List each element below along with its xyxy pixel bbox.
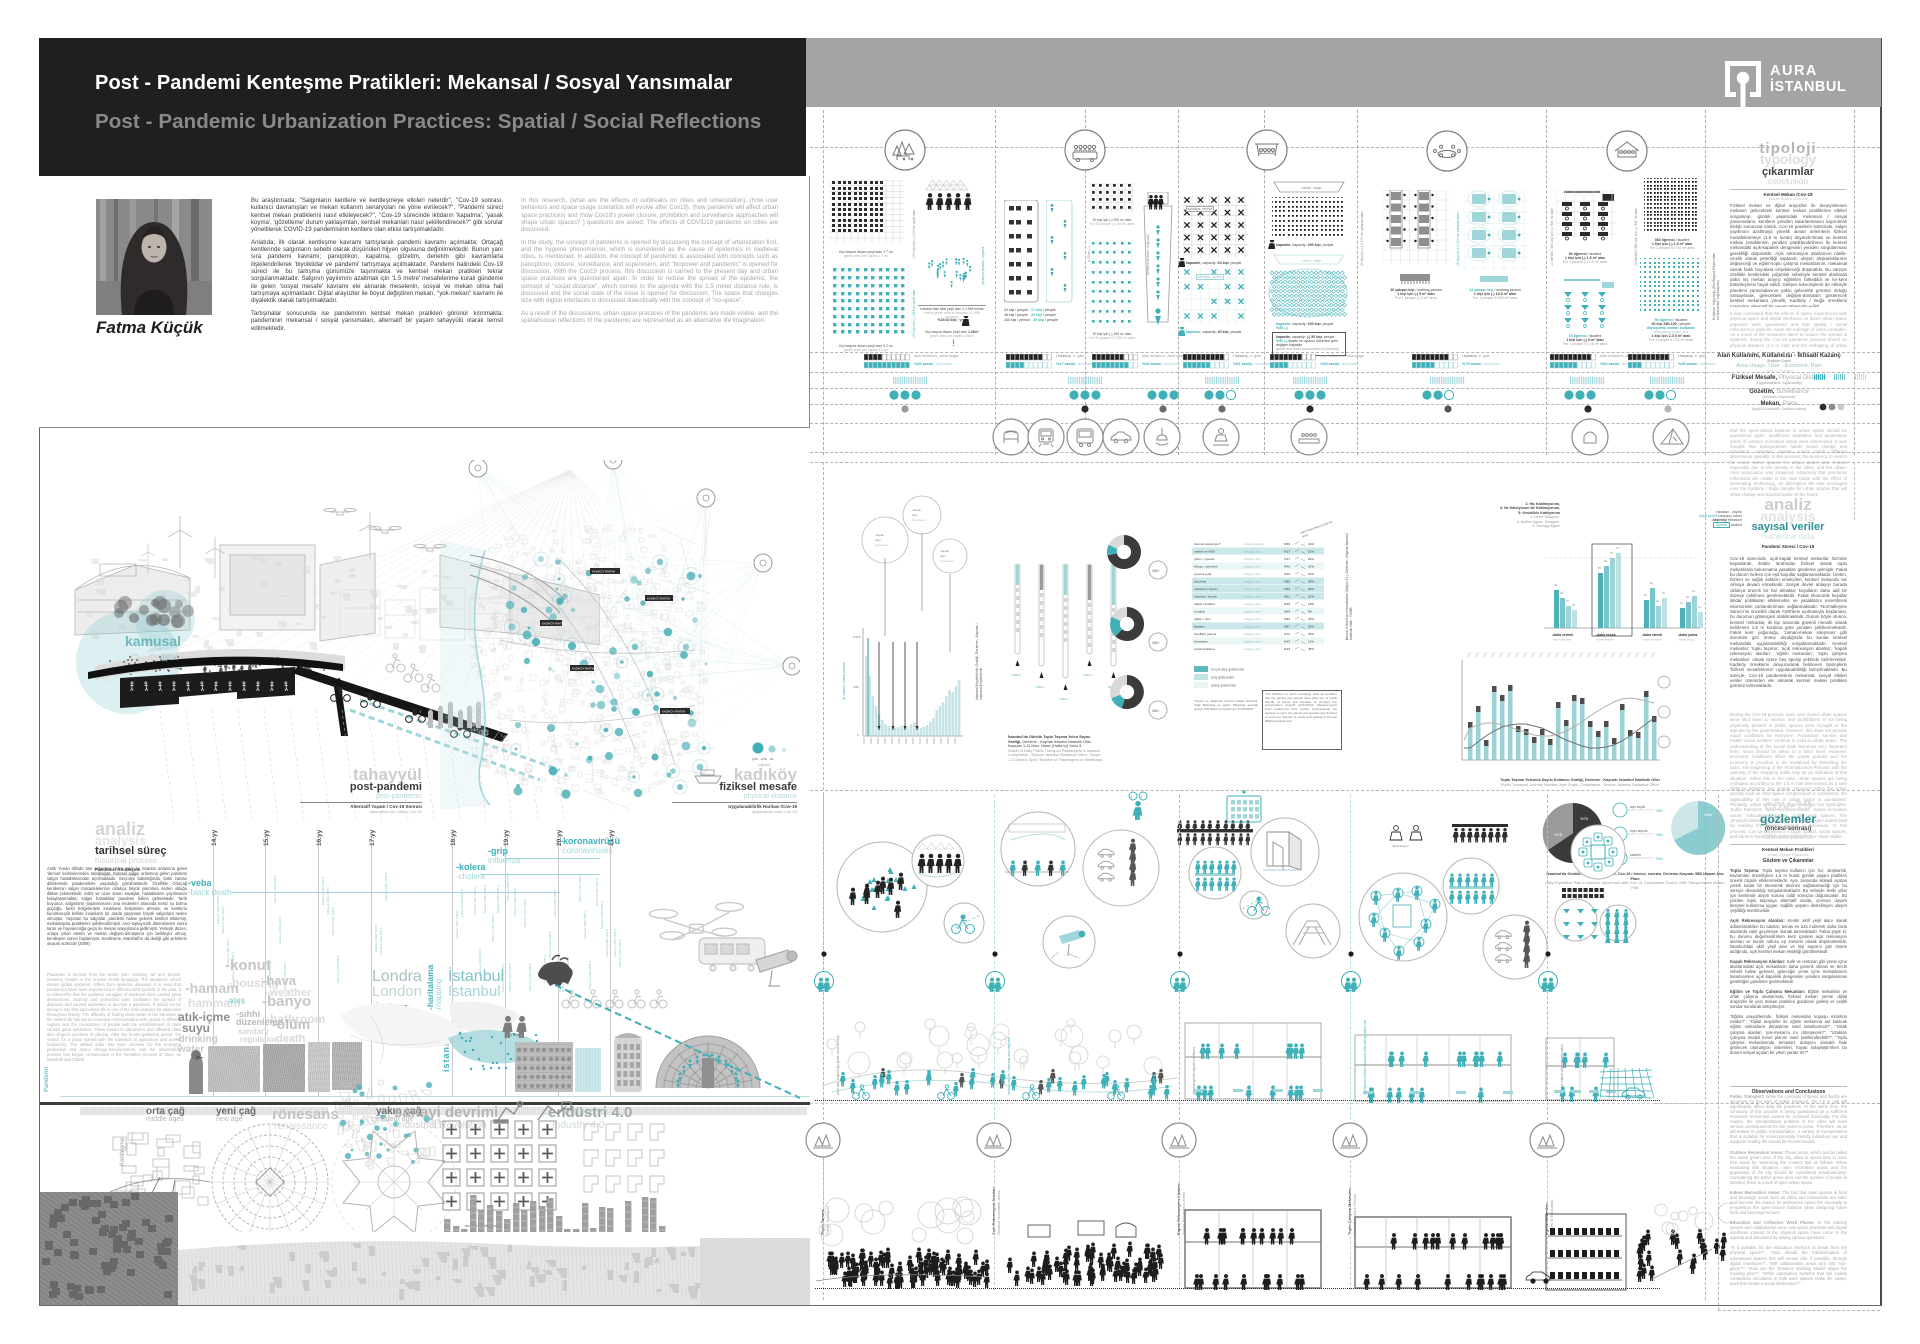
- svg-text:12/03: 12/03: [1506, 652, 1512, 659]
- svg-text:VAH: VAH: [1152, 709, 1159, 713]
- svg-text:30%: 30%: [1308, 587, 1314, 591]
- svg-text:-more lining: -more lining: [1678, 638, 1694, 642]
- svg-text:52%: 52%: [1308, 549, 1314, 553]
- svg-text:22%: 22%: [1308, 557, 1314, 561]
- svg-text:category item: category item: [1244, 587, 1262, 591]
- svg-text:KADIKÖY RIHTIM: KADIKÖY RIHTIM: [592, 570, 615, 574]
- svg-text:18: 18: [1572, 603, 1575, 607]
- svg-text:16: 16: [1698, 605, 1701, 609]
- svg-text:62: 62: [1604, 559, 1607, 563]
- svg-text:kadıköy: kadıköy: [1630, 853, 1641, 857]
- svg-text:%64: %64: [1704, 812, 1713, 817]
- svg-text:sağlık / kuaförü: sağlık / kuaförü: [1194, 602, 1215, 606]
- svg-text:%26.3: %26.3: [1084, 673, 1093, 677]
- svg-text:32: 32: [1692, 589, 1695, 593]
- svg-text:dijital arayüz: dijital arayüz: [1392, 844, 1409, 848]
- svg-text:-kapalı: -kapalı: [875, 533, 884, 537]
- svg-text:70: 70: [1610, 551, 1613, 555]
- svg-text:eğitim / okul: eğitim / okul: [1194, 617, 1211, 621]
- svg-text:%30.2: %30.2: [1060, 697, 1069, 701]
- svg-text:%67: %67: [1284, 624, 1290, 628]
- svg-text:category item: category item: [1244, 549, 1262, 553]
- svg-text:%40: %40: [1284, 564, 1290, 568]
- svg-text:%44: %44: [1656, 857, 1663, 861]
- svg-text:-more stressful: -more stressful: [1642, 638, 1662, 642]
- svg-text:internet alışverişim*: internet alışverişim*: [1194, 542, 1222, 546]
- svg-text:market ve AVM: market ve AVM: [1194, 549, 1215, 553]
- svg-text:gıdım / yiyecek: gıdım / yiyecek: [1194, 557, 1215, 561]
- svg-text:alan: alan: [875, 538, 881, 542]
- svg-text:alan: alan: [940, 554, 946, 558]
- svg-text:%50: %50: [853, 685, 859, 689]
- svg-text:8%: 8%: [1308, 609, 1313, 613]
- svg-text:%39: %39: [1284, 602, 1290, 606]
- svg-text:category item: category item: [1244, 594, 1262, 598]
- svg-text:12/03: 12/03: [1538, 652, 1544, 659]
- svg-text:-daha esnek: -daha esnek: [1596, 633, 1616, 637]
- svg-text:12/03: 12/03: [1610, 652, 1616, 659]
- svg-text:category item: category item: [1244, 624, 1262, 628]
- svg-text:03/20: 03/20: [890, 737, 894, 744]
- svg-text:%83: %83: [1284, 617, 1290, 621]
- svg-text:%38.0: %38.0: [1012, 673, 1021, 677]
- svg-text:category item: category item: [1244, 617, 1262, 621]
- svg-text:12/03: 12/03: [1546, 652, 1552, 659]
- svg-text:category item: category item: [1244, 602, 1262, 606]
- svg-text:%70: %70: [1284, 632, 1290, 636]
- svg-text:12/03: 12/03: [1570, 652, 1576, 659]
- svg-text:03/20: 03/20: [897, 737, 901, 744]
- svg-text:4: 4: [1140, 794, 1143, 799]
- svg-text:41%: 41%: [1308, 542, 1314, 546]
- svg-text:%89: %89: [1284, 579, 1290, 583]
- svg-text:alışverişi: alışverişi: [1194, 579, 1206, 583]
- svg-text:%27: %27: [1284, 549, 1290, 553]
- svg-text:12/03: 12/03: [1562, 652, 1568, 659]
- svg-text:%43: %43: [1284, 639, 1290, 643]
- svg-text:KADIKÖY RIHTIM: KADIKÖY RIHTIM: [542, 622, 565, 626]
- svg-text:38: 38: [1554, 583, 1557, 587]
- svg-text:category item: category item: [1244, 609, 1262, 613]
- svg-text:restoran / yemek: restoran / yemek: [1194, 594, 1217, 598]
- svg-text:13%: 13%: [1308, 639, 1314, 643]
- svg-text:4: 4: [1130, 794, 1133, 799]
- svg-text:12/03: 12/03: [1482, 652, 1488, 659]
- svg-text:artış gösterenler: artış gösterenler: [1211, 676, 1235, 680]
- svg-text:1.5m: 1.5m: [510, 1032, 520, 1037]
- svg-text:03/20: 03/20: [883, 737, 887, 744]
- svg-text:12/03: 12/03: [1626, 652, 1632, 659]
- svg-text:alan: alan: [912, 513, 918, 517]
- svg-text:category item: category item: [1244, 557, 1262, 561]
- svg-text:-kapalı: -kapalı: [912, 508, 921, 512]
- svg-text:-more flexible: -more flexible: [1596, 638, 1614, 642]
- svg-text:category item: category item: [1244, 639, 1262, 643]
- svg-text:12/03: 12/03: [1554, 652, 1560, 659]
- svg-text:-kapalı: -kapalı: [940, 549, 949, 553]
- svg-text:sahne, stage: sahne, stage: [1302, 259, 1322, 263]
- svg-text:35%: 35%: [1308, 632, 1314, 636]
- svg-text:16%: 16%: [1308, 564, 1314, 568]
- svg-text:45%: 45%: [1308, 647, 1314, 651]
- svg-text:-more efficient: -more efficient: [1552, 638, 1571, 642]
- svg-text:22: 22: [1566, 599, 1569, 603]
- svg-text:12/03: 12/03: [1618, 652, 1624, 659]
- svg-text:-daha stresli: -daha stresli: [1642, 633, 1662, 637]
- svg-text:75: 75: [1616, 546, 1619, 550]
- svg-text:55: 55: [1598, 566, 1601, 570]
- svg-text:12/03: 12/03: [1650, 652, 1656, 659]
- svg-text:03/20: 03/20: [939, 737, 943, 744]
- svg-text:category item: category item: [1244, 564, 1262, 568]
- svg-text:ibadiyet: ibadiyet: [1194, 624, 1205, 628]
- svg-text:20: 20: [1680, 601, 1683, 605]
- svg-text:İSTANBUL: İSTANBUL: [1770, 78, 1846, 95]
- svg-text:ihtiyaç / sebzeleri: ihtiyaç / sebzeleri: [1194, 564, 1218, 568]
- svg-text:mahkeme ziyaret: mahkeme ziyaret: [1194, 587, 1218, 591]
- svg-text:closed area: closed area: [912, 518, 926, 522]
- svg-text:03/20: 03/20: [918, 737, 922, 744]
- svg-text:03/20: 03/20: [946, 737, 950, 744]
- svg-text:12/03: 12/03: [1530, 652, 1536, 659]
- svg-text:30: 30: [1662, 591, 1665, 595]
- svg-text:%51: %51: [1284, 594, 1290, 598]
- svg-text:dijital: dijital: [160, 653, 178, 662]
- svg-text:KADIKÖY RIHTIM: KADIKÖY RIHTIM: [572, 667, 595, 671]
- svg-text:%40: %40: [1284, 572, 1290, 576]
- svg-text:eczalığı: eczalığı: [1194, 609, 1205, 613]
- svg-text:30: 30: [1560, 591, 1563, 595]
- svg-text:12/03: 12/03: [1466, 652, 1472, 659]
- svg-text:kamusal: kamusal: [125, 633, 181, 649]
- svg-text:12/03: 12/03: [1594, 652, 1600, 659]
- svg-text:32%: 32%: [1308, 594, 1314, 598]
- svg-text:KADIKÖY RIHTIM: KADIKÖY RIHTIM: [662, 710, 685, 714]
- svg-text:category item: category item: [1244, 647, 1262, 651]
- svg-text:%62: %62: [1656, 809, 1663, 813]
- svg-text:yiyecek gıda: yiyecek gıda: [1194, 572, 1211, 576]
- svg-text:0: 0: [857, 733, 859, 737]
- svg-text:12/03: 12/03: [1634, 652, 1640, 659]
- svg-text:18%: 18%: [1308, 602, 1314, 606]
- svg-text:40: 40: [1650, 581, 1653, 585]
- svg-text:-daha yalnız: -daha yalnız: [1678, 633, 1698, 637]
- svg-text:22: 22: [1656, 599, 1659, 603]
- svg-text:12/03: 12/03: [1522, 652, 1528, 659]
- svg-text:istediğini yapma: istediğini yapma: [1194, 632, 1216, 636]
- svg-text:12/03: 12/03: [1578, 652, 1584, 659]
- svg-text:%23: %23: [1284, 647, 1290, 651]
- svg-text:12/03: 12/03: [1642, 652, 1648, 659]
- svg-text:38%: 38%: [1308, 579, 1314, 583]
- svg-text:03/20: 03/20: [925, 737, 929, 744]
- svg-text:03/20: 03/20: [953, 737, 957, 744]
- svg-text:sahne, stage: sahne, stage: [1302, 186, 1322, 190]
- svg-text:AURA: AURA: [1770, 63, 1818, 79]
- svg-text:03/20: 03/20: [862, 737, 866, 744]
- svg-text:%34.1: %34.1: [1036, 685, 1045, 689]
- svg-text:closed area: closed area: [875, 543, 889, 547]
- svg-text:28: 28: [1644, 593, 1647, 597]
- svg-text:%25: %25: [1554, 832, 1563, 837]
- svg-text:%53: %53: [1656, 833, 1663, 837]
- svg-text:%100: %100: [853, 635, 861, 639]
- svg-text:VAH: VAH: [1152, 569, 1159, 573]
- svg-text:12/03: 12/03: [1498, 652, 1504, 659]
- svg-text:03/20: 03/20: [869, 737, 873, 744]
- svg-text:%69: %69: [1284, 609, 1290, 613]
- svg-text:03/20: 03/20: [904, 737, 908, 744]
- svg-text:category item: category item: [1244, 579, 1262, 583]
- svg-text:%17: %17: [1284, 557, 1290, 561]
- svg-text:category item: category item: [1244, 632, 1262, 636]
- svg-text:12/03: 12/03: [1602, 652, 1608, 659]
- svg-text:12/03: 12/03: [1474, 652, 1480, 659]
- svg-text:31%: 31%: [1308, 572, 1314, 576]
- svg-text:KADIKÖY RIHTIM: KADIKÖY RIHTIM: [647, 597, 670, 601]
- svg-text:03/20: 03/20: [911, 737, 915, 744]
- svg-text:closed area: closed area: [940, 559, 954, 563]
- svg-text:analiz-kodlama: analiz-kodlama: [1194, 647, 1215, 651]
- svg-text:-daha verimli: -daha verimli: [1552, 633, 1573, 637]
- svg-text:category item: category item: [1244, 572, 1262, 576]
- svg-text:kırtasiyem: kırtasiyem: [1194, 639, 1209, 643]
- svg-text:çok orta az: çok orta az: [752, 757, 774, 761]
- svg-text:03/20: 03/20: [876, 737, 880, 744]
- svg-text:toplu taşıma: toplu taşıma: [1630, 829, 1648, 833]
- svg-text:26: 26: [1686, 595, 1689, 599]
- svg-text:en çok artış gösterenler: en çok artış gösterenler: [1211, 668, 1245, 672]
- svg-text:03/20: 03/20: [932, 737, 936, 744]
- svg-text:25%: 25%: [1308, 624, 1314, 628]
- svg-text:15%: 15%: [1308, 617, 1314, 621]
- svg-text:12/03: 12/03: [1586, 652, 1592, 659]
- svg-text:online shopping: online shopping: [1244, 542, 1265, 546]
- svg-text:VAH: VAH: [1152, 641, 1159, 645]
- svg-text:12/03: 12/03: [1514, 652, 1520, 659]
- svg-text:%59: %59: [1284, 542, 1290, 546]
- svg-text:azalış gösterenler: azalış gösterenler: [1211, 684, 1237, 688]
- svg-text:%75: %75: [1580, 816, 1589, 821]
- svg-text:açık kapalı: açık kapalı: [1630, 805, 1645, 809]
- svg-text:%83: %83: [1284, 587, 1290, 591]
- svg-text:12/03: 12/03: [1490, 652, 1496, 659]
